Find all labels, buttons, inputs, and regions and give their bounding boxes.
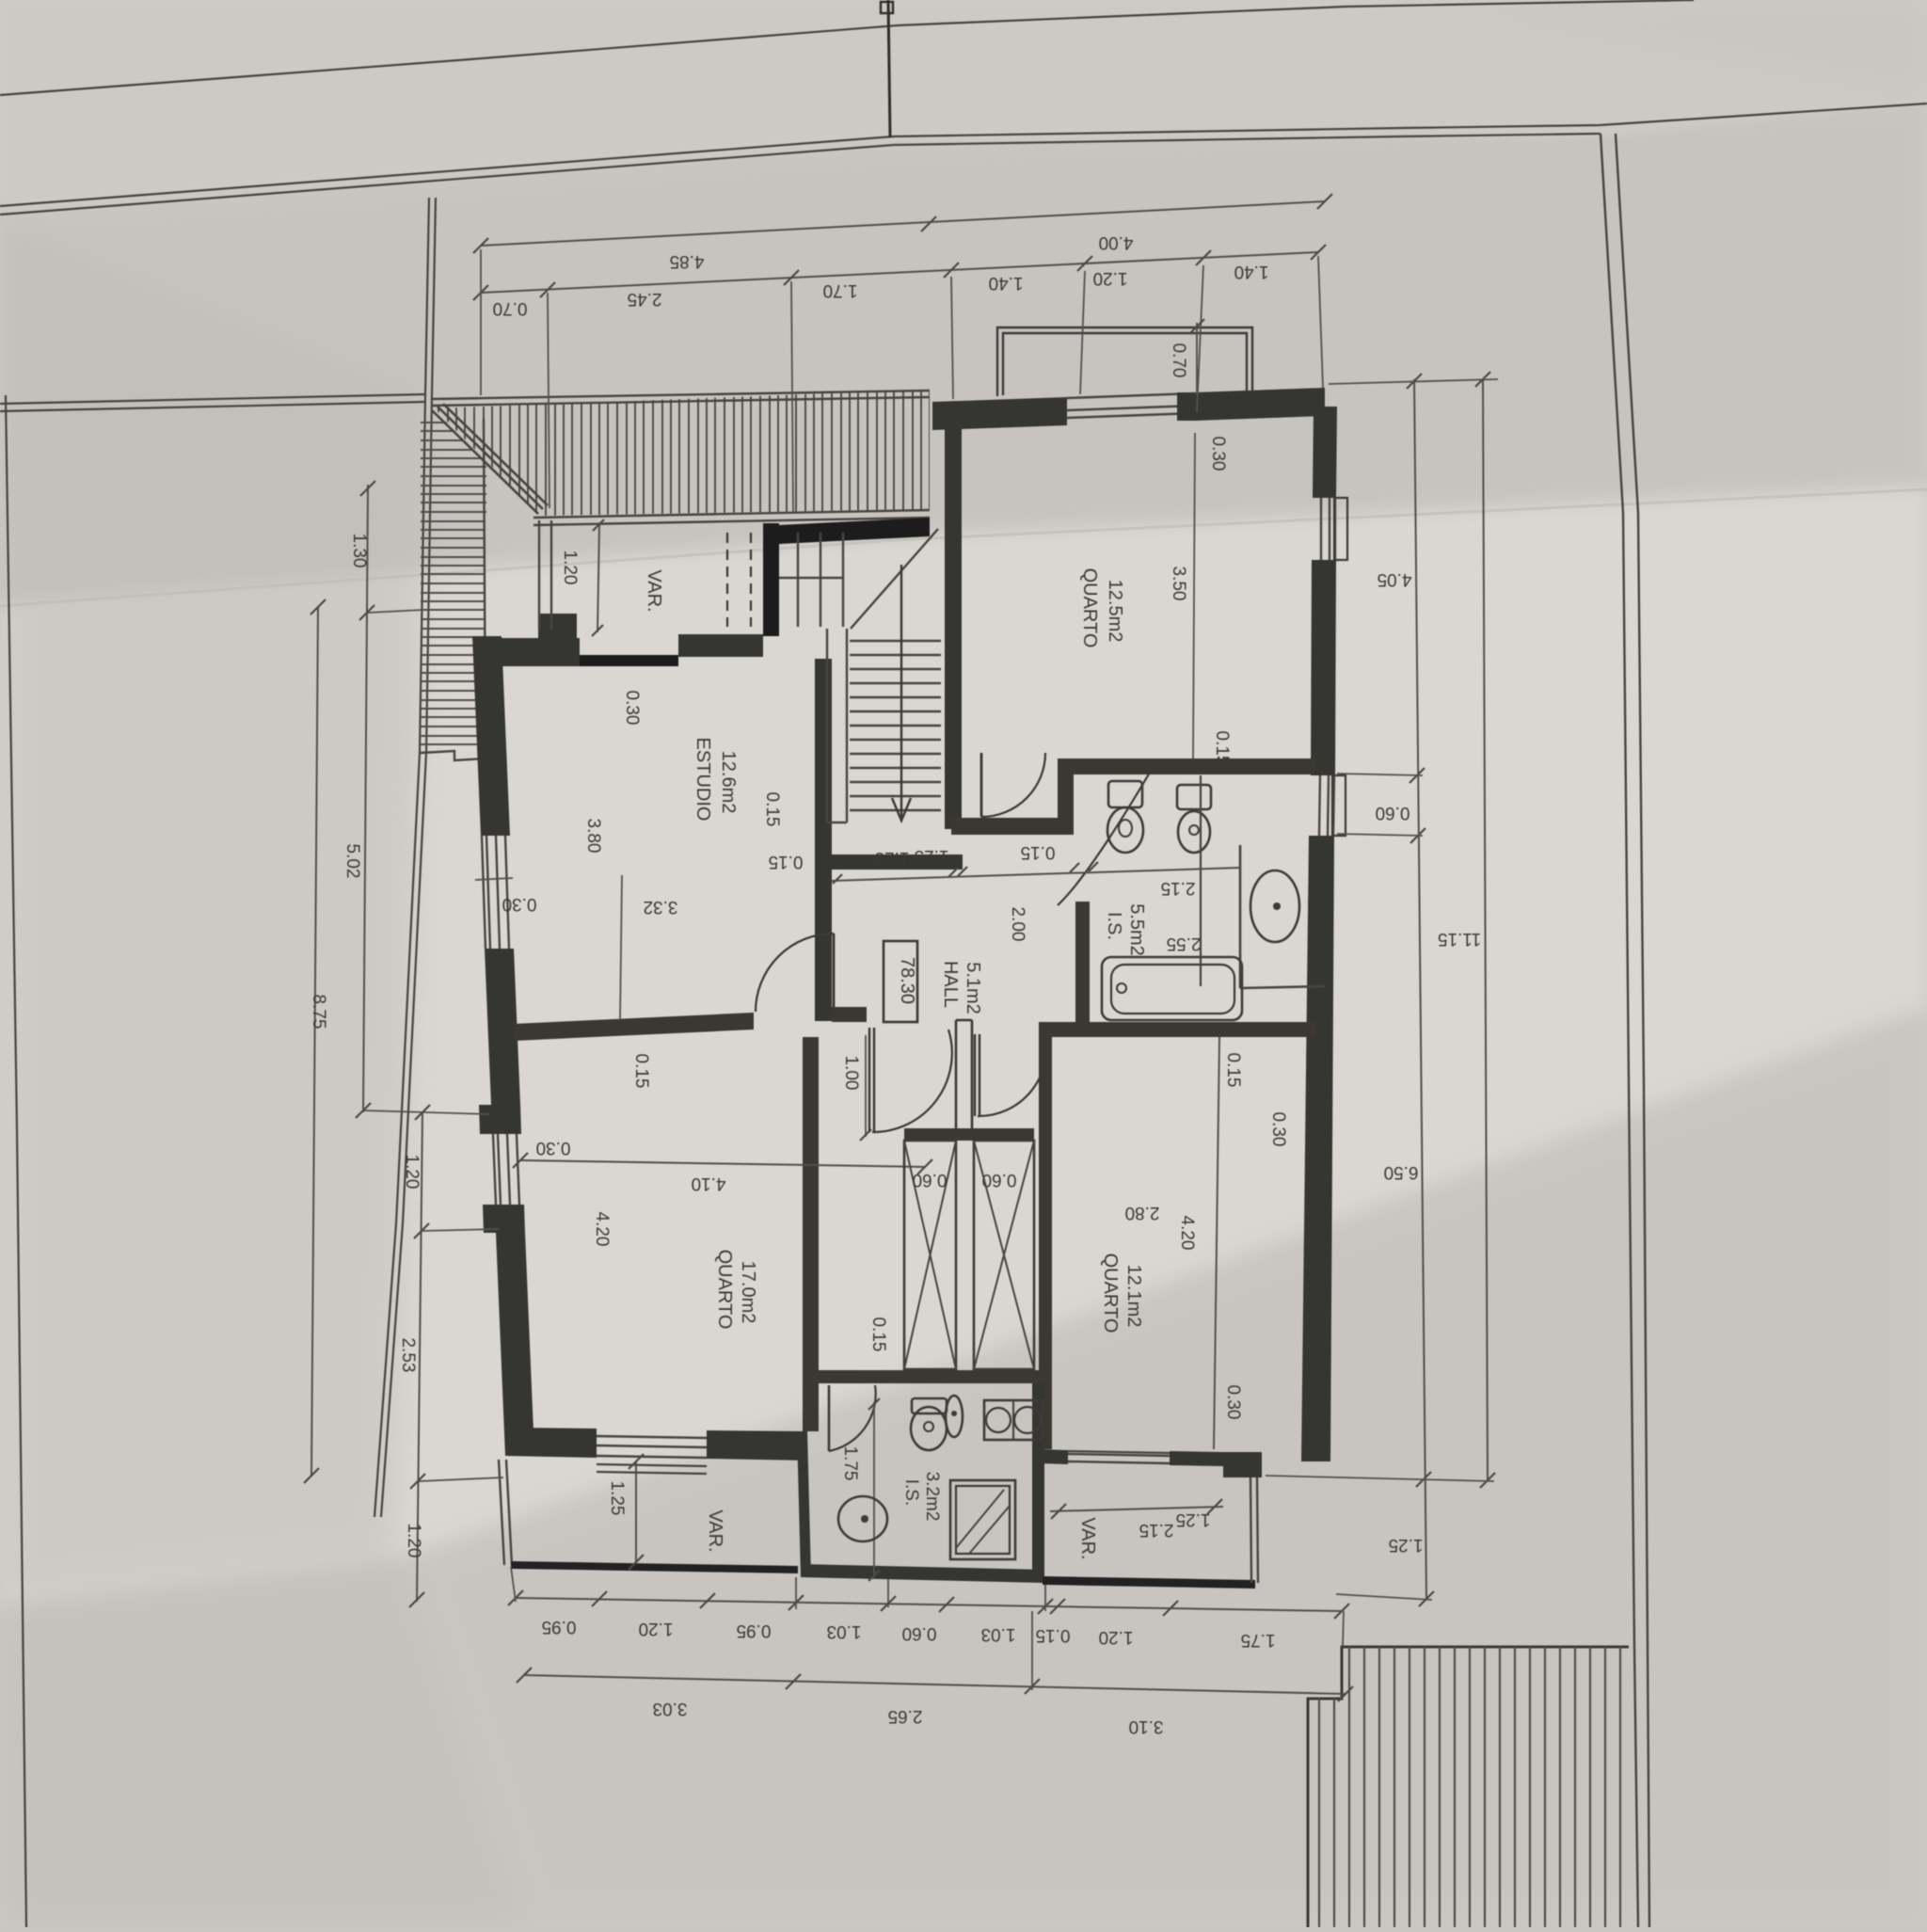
- svg-text:VAR.: VAR.: [705, 1509, 725, 1552]
- svg-text:11.15: 11.15: [1438, 929, 1481, 949]
- svg-text:1.25: 1.25: [1389, 1535, 1424, 1555]
- svg-text:0.60: 0.60: [1376, 803, 1410, 822]
- svg-text:0.70: 0.70: [1169, 343, 1188, 378]
- svg-text:1.25: 1.25: [915, 846, 949, 866]
- svg-text:1.20: 1.20: [1093, 268, 1128, 288]
- svg-text:5.5m2: 5.5m2: [1126, 903, 1147, 956]
- svg-text:3.32: 3.32: [644, 897, 678, 917]
- svg-text:1.03: 1.03: [827, 1621, 862, 1641]
- svg-text:0.30: 0.30: [1208, 437, 1228, 471]
- svg-text:78.30: 78.30: [897, 957, 917, 1004]
- svg-text:2.53: 2.53: [398, 1338, 418, 1373]
- svg-text:17.0m2: 17.0m2: [738, 1261, 758, 1324]
- svg-text:0.15: 0.15: [1223, 1053, 1243, 1088]
- svg-text:1.40: 1.40: [1234, 262, 1269, 281]
- svg-text:1.20: 1.20: [404, 1524, 423, 1558]
- svg-text:0.30: 0.30: [1223, 1385, 1243, 1420]
- svg-text:1.20: 1.20: [639, 1619, 674, 1638]
- svg-text:3.80: 3.80: [583, 819, 603, 854]
- svg-text:0.30: 0.30: [1268, 1112, 1288, 1147]
- svg-text:4.10: 4.10: [692, 1174, 726, 1193]
- svg-text:0.15: 0.15: [1021, 842, 1056, 862]
- svg-text:2.65: 2.65: [888, 1706, 923, 1726]
- svg-text:4.20: 4.20: [592, 1212, 612, 1247]
- svg-text:3.03: 3.03: [653, 1699, 688, 1718]
- svg-text:1.25: 1.25: [607, 1481, 627, 1516]
- svg-text:12.6m2: 12.6m2: [718, 751, 739, 814]
- svg-text:1.20: 1.20: [402, 1155, 422, 1190]
- svg-text:QUARTO: QUARTO: [1079, 568, 1100, 648]
- svg-text:1.20: 1.20: [560, 551, 580, 585]
- svg-text:4.85: 4.85: [670, 251, 705, 271]
- svg-text:1.25: 1.25: [1176, 1509, 1211, 1529]
- svg-text:0.60: 0.60: [982, 1170, 1017, 1190]
- svg-text:2.55: 2.55: [1167, 934, 1202, 953]
- svg-text:HALL: HALL: [940, 961, 961, 1008]
- svg-text:0.15: 0.15: [769, 852, 804, 871]
- svg-text:0.70: 0.70: [493, 298, 528, 318]
- svg-text:QUARTO: QUARTO: [1100, 1253, 1121, 1333]
- svg-text:1.20: 1.20: [1099, 1627, 1134, 1647]
- svg-text:0.60: 0.60: [913, 1170, 948, 1190]
- svg-text:3.50: 3.50: [1169, 567, 1188, 601]
- svg-text:8.75: 8.75: [309, 995, 328, 1030]
- svg-text:1.75: 1.75: [840, 1446, 860, 1481]
- svg-text:0.95: 0.95: [737, 1621, 772, 1640]
- svg-text:3.10: 3.10: [1129, 1716, 1164, 1736]
- svg-text:5.02: 5.02: [342, 844, 362, 879]
- svg-text:2.00: 2.00: [1008, 907, 1027, 942]
- svg-text:2.15: 2.15: [1161, 878, 1196, 898]
- svg-text:6.50: 6.50: [1384, 1162, 1419, 1182]
- svg-text:1.30: 1.30: [349, 534, 369, 568]
- svg-text:0.15: 0.15: [1036, 1625, 1071, 1645]
- svg-text:0.95: 0.95: [542, 1617, 577, 1637]
- svg-text:2.15: 2.15: [1139, 1520, 1174, 1540]
- svg-text:1.23: 1.23: [875, 848, 910, 868]
- svg-text:QUARTO: QUARTO: [714, 1250, 735, 1330]
- svg-text:2.80: 2.80: [1125, 1203, 1160, 1222]
- svg-text:4.05: 4.05: [1378, 569, 1412, 589]
- svg-text:ESTUDIO: ESTUDIO: [693, 738, 713, 822]
- svg-text:12.1m2: 12.1m2: [1123, 1265, 1144, 1328]
- svg-text:0.60: 0.60: [902, 1623, 937, 1643]
- svg-text:1.40: 1.40: [989, 273, 1024, 293]
- svg-text:I.S.: I.S.: [901, 1479, 921, 1507]
- svg-text:12.5m2: 12.5m2: [1105, 580, 1125, 643]
- svg-text:1.00: 1.00: [841, 1056, 861, 1091]
- svg-text:VAR.: VAR.: [1077, 1517, 1098, 1559]
- svg-text:VAR.: VAR.: [644, 569, 664, 612]
- svg-text:1.75: 1.75: [1241, 1630, 1276, 1650]
- svg-text:0.15: 0.15: [631, 1054, 651, 1089]
- svg-text:0.30: 0.30: [502, 894, 537, 914]
- svg-text:1.03: 1.03: [981, 1624, 1016, 1644]
- svg-text:0.15: 0.15: [762, 792, 782, 827]
- svg-text:0.15: 0.15: [868, 1317, 888, 1352]
- svg-text:0.15: 0.15: [1212, 731, 1232, 766]
- svg-text:2.45: 2.45: [628, 289, 662, 309]
- svg-text:5.1m2: 5.1m2: [963, 962, 983, 1014]
- svg-text:4.20: 4.20: [1177, 1216, 1197, 1251]
- svg-text:3.2m2: 3.2m2: [922, 1472, 942, 1522]
- svg-text:4.00: 4.00: [1099, 232, 1134, 252]
- svg-text:0.30: 0.30: [622, 691, 642, 726]
- svg-text:I.S.: I.S.: [1104, 912, 1124, 940]
- svg-text:0.30: 0.30: [536, 1138, 571, 1158]
- svg-text:1.70: 1.70: [823, 280, 858, 300]
